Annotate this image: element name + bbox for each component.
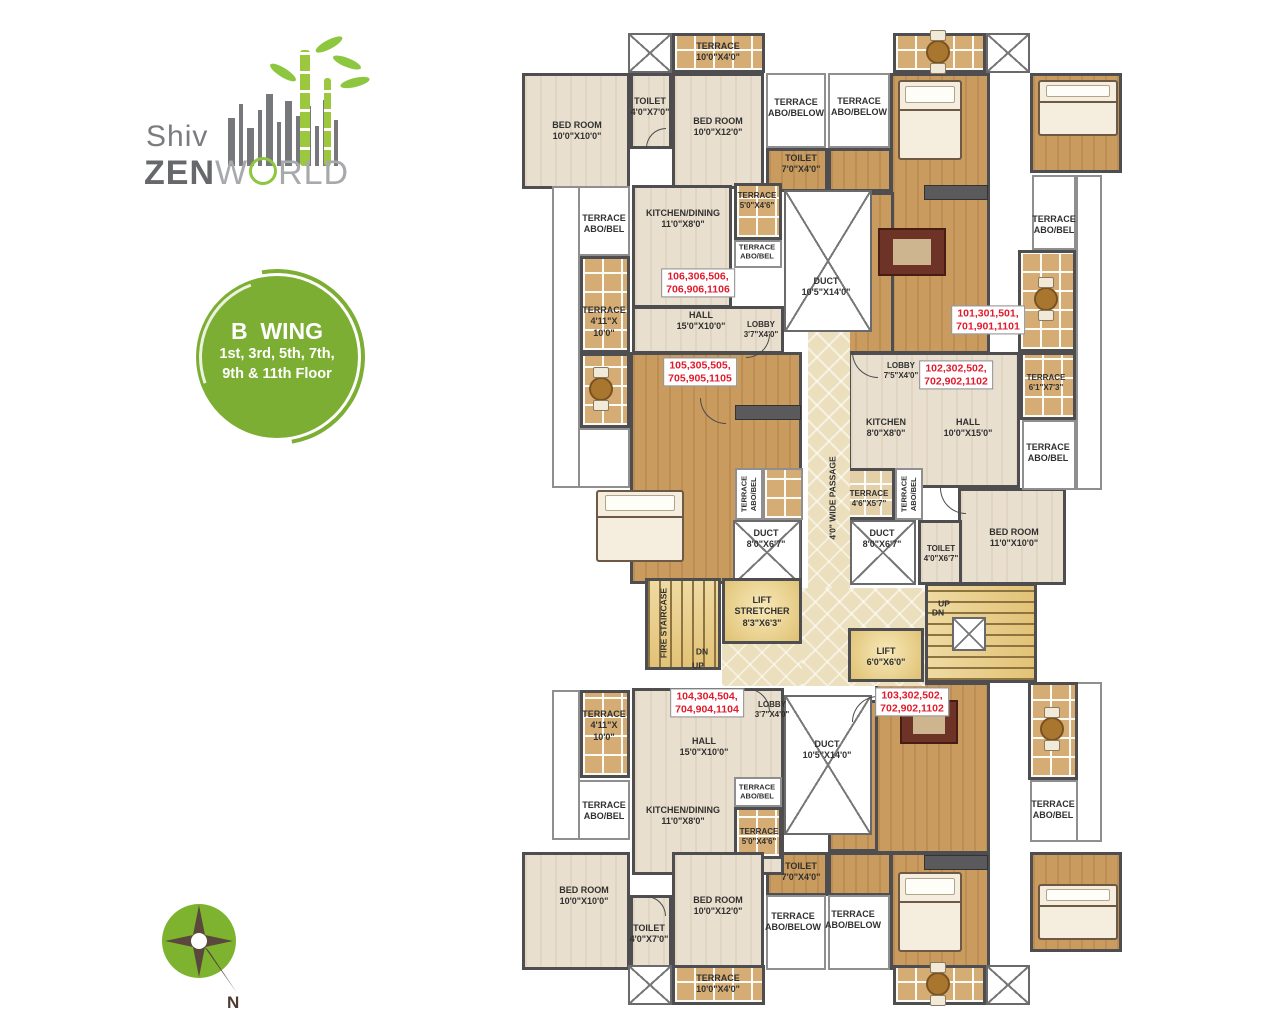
room-terrace-abo-bottom-2 [828,895,890,970]
room-label-line: ABO/BEL [1031,810,1075,821]
room-label-line: TERRACE [900,476,909,512]
room-label-line: 8'0"X6'7" [747,539,786,550]
room-label-line: TERRACE [825,909,881,920]
room-label: LIFT6'0"X6'0" [867,646,906,669]
unit-numbers-label: 106,306,506,706,906,1106 [661,268,735,297]
room-bedroom-bottom-left [522,852,630,970]
room-label: DN [696,647,708,658]
room-label-line: 3'7"X4'0" [755,710,790,720]
room-label-line: ABO/BELOW [768,108,824,119]
room-label: TOILET7'0"X4'0" [782,861,821,884]
room-label-line: KITCHEN/DINING [646,208,720,219]
room-label-line: 10'0" [582,328,626,339]
room-label: KITCHEN/DINING11'0"X8'0" [646,805,720,828]
room-label: TERRACE4'11"X10'0" [582,305,626,339]
room-label-line: TERRACE [850,489,889,499]
room-label-line: 15'0"X10'0" [680,747,729,758]
unit-numbers-label: 102,302,502,702,902,1102 [919,360,993,389]
room-label-line: 10'0" [582,732,626,743]
room-label-line: 4'0"X7'0" [630,934,669,945]
room-label-line: TOILET [782,861,821,872]
room-label-line: HALL [944,417,993,428]
room-label-line: 10'0"X15'0" [944,428,993,439]
room-label-line: 8'0"X8'0" [866,428,906,439]
room-label-line: 4'0" WIDE PASSAGE [828,456,839,539]
room-shaft-bottom-left [628,965,672,1005]
unit-numbers-label: 103,302,502,702,902,1102 [875,687,949,716]
room-label: TERRACE10'0"X4'0" [696,973,740,996]
floor-plan-page: Shiv ZENWRLD B WING 1st, 3rd, 5th, 7th, … [0,0,1280,1024]
room-label: 4'0" WIDE PASSAGE [828,456,839,539]
door-arc-icon [940,488,966,514]
room-label: HALL15'0"X10'0" [677,310,726,333]
room-label: TOILET4'0"X6'7" [924,544,959,564]
table-icon [1040,717,1064,741]
counter-icon [735,405,801,420]
room-label: TOILET7'0"X4'0" [782,153,821,176]
room-label-line: BED ROOM [989,527,1039,538]
room-label-line: TERRACE [582,800,626,811]
room-label: TERRACEABO/BEL [739,243,775,262]
room-label: LOBBY7'5"X4'0" [884,361,919,381]
unit-numbers-line: 705,905,1105 [668,372,732,385]
room-label: LIFTSTRETCHER8'3"X6'3" [734,595,789,629]
unit-numbers-line: 702,902,1102 [924,375,988,388]
room-label: LOBBY3'7"X4'0" [755,700,790,720]
room-label: BED ROOM10'0"X12'0" [693,116,743,139]
room-duct-top [784,190,872,332]
unit-numbers-label: 101,301,501,701,901,1101 [951,305,1025,334]
room-label: TERRACE5'0"X4'6" [740,827,779,847]
room-label: TERRACEABO/BEL [740,476,759,512]
room-label-line: HALL [680,736,729,747]
room-label-line: 10'0"X12'0" [693,906,743,917]
room-label-line: ABO/BEL [739,252,775,261]
room-label-line: 15'0"X10'0" [677,321,726,332]
room-label-line: 10'0"X12'0" [693,127,743,138]
room-label-line: ABO/BEL [909,476,918,512]
unit-numbers-label: 105,305,505,705,905,1105 [663,357,737,386]
room-label-line: TOILET [782,153,821,164]
table-icon [589,377,613,401]
room-label-line: TERRACE [582,213,626,224]
unit-numbers-line: 106,306,506, [666,270,730,283]
room-label-line: BED ROOM [552,120,602,131]
room-label-line: TERRACE [740,476,749,512]
bed-icon [1038,884,1118,940]
room-label-line: KITCHEN [866,417,906,428]
room-label: TOILET4'0"X7'0" [631,96,670,119]
room-label-line: BED ROOM [559,885,609,896]
room-shaft-top-left [628,33,672,73]
room-label-line: HALL [677,310,726,321]
room-label: DN [932,608,944,619]
room-label-line: TERRACE [740,827,779,837]
room-label-line: ABO/BEL [582,224,626,235]
room-label: LOBBY3'7"X4'0" [744,320,779,340]
room-label-line: TERRACE [739,783,775,792]
room-label-line: 3'7"X4'0" [744,330,779,340]
room-label: FIRE STAIRCASE [659,588,670,658]
room-label: DUCT8'0"X6'7" [747,528,786,551]
room-shaft-bottom-right [986,965,1030,1005]
bed-icon [596,490,684,562]
room-label: BED ROOM10'0"X12'0" [693,895,743,918]
room-tile-105-patch [763,468,803,520]
room-label-line: 10'5"X14'0" [803,750,852,761]
room-label-line: TERRACE [1027,373,1066,383]
room-label-line: ABO/BEL [1032,225,1076,236]
room-label-line: UP [692,661,704,672]
room-label-line: TOILET [631,96,670,107]
room-label-line: 4'11"X [582,316,626,327]
room-label: DUCT10'5"X14'0" [802,276,851,299]
room-label-line: TERRACE [696,41,740,52]
room-label-line: 6'0"X6'0" [867,657,906,668]
room-terrace-abol-left-2 [578,428,630,488]
room-label-line: BED ROOM [693,116,743,127]
room-label-line: TERRACE [765,911,821,922]
room-stair-landing [952,617,986,651]
room-label-line: TERRACE [582,305,626,316]
room-label-line: TERRACE [1032,214,1076,225]
room-label: UP [692,661,704,672]
rug-icon [878,228,946,276]
room-label: TERRACEABO/BEL [582,800,626,823]
room-label-line: 4'0"X6'7" [924,554,959,564]
room-label: TERRACE5'0"X4'6" [738,191,777,211]
room-label-line: TERRACE [768,97,824,108]
room-label-line: 4'11"X [582,720,626,731]
room-label: BED ROOM10'0"X10'0" [559,885,609,908]
bed-icon [1038,80,1118,136]
room-label-line: TERRACE [696,973,740,984]
room-label: TERRACEABO/BEL [582,213,626,236]
room-label: TERRACE4'11"X10'0" [582,709,626,743]
floor-plan: TERRACE10'0"X4'0"BED ROOM10'0"X10'0"TOIL… [0,0,1280,1024]
room-label: TERRACEABO/BELOW [825,909,881,932]
wing-badge-floors-2: 9th & 11th Floor [196,365,358,385]
room-label: TERRACEABO/BEL [1031,799,1075,822]
room-label-line: DUCT [747,528,786,539]
room-label: KITCHEN8'0"X8'0" [866,417,906,440]
room-label-line: ABO/BEL [1026,453,1070,464]
room-label: TERRACE10'0"X4'0" [696,41,740,64]
room-label-line: TERRACE [831,96,887,107]
room-label-line: TERRACE [738,191,777,201]
unit-numbers-line: 102,302,502, [924,362,988,375]
room-label-line: DUCT [803,739,852,750]
room-label-line: 10'0"X4'0" [696,984,740,995]
room-label-line: 10'0"X10'0" [552,131,602,142]
room-label: DUCT10'5"X14'0" [803,739,852,762]
room-label-line: TERRACE [1031,799,1075,810]
room-label-line: 4'0"X7'0" [631,107,670,118]
room-label-line: LOBBY [755,700,790,710]
room-terrace-abol-right-top [1032,175,1076,250]
room-label-line: KITCHEN/DINING [646,805,720,816]
room-label: HALL10'0"X15'0" [944,417,993,440]
room-label-line: 11'0"X10'0" [989,538,1039,549]
room-label-line: 10'0"X10'0" [559,896,609,907]
room-label-line: ABO/BELOW [831,107,887,118]
unit-numbers-line: 702,902,1102 [880,702,944,715]
room-label-line: TOILET [630,923,669,934]
room-label-line: LOBBY [884,361,919,371]
counter-icon [924,855,988,870]
room-label-line: 8'3"X6'3" [734,618,789,629]
room-label: BED ROOM11'0"X10'0" [989,527,1039,550]
room-label-line: 7'0"X4'0" [782,164,821,175]
room-label-line: 6'1"X7'3" [1027,383,1066,393]
unit-numbers-line: 103,302,502, [880,689,944,702]
room-shaft-top-right [986,33,1030,73]
room-label: HALL15'0"X10'0" [680,736,729,759]
room-label: BED ROOM10'0"X10'0" [552,120,602,143]
wing-badge-title: B WING [196,318,358,345]
unit-numbers-line: 704,904,1104 [675,703,739,716]
room-label: TERRACE4'6"X5'7" [850,489,889,509]
room-label-line: 5'0"X4'6" [740,837,779,847]
room-label-line: 5'0"X4'6" [738,201,777,211]
room-edge-right-bottom [1076,682,1102,842]
room-edge-left-bottom [552,690,580,840]
table-icon [1034,287,1058,311]
room-label: TERRACEABO/BELOW [768,97,824,120]
room-label-line: 11'0"X8'0" [646,219,720,230]
room-edge-right-top [1076,175,1102,490]
wing-badge: B WING 1st, 3rd, 5th, 7th, 9th & 11th Fl… [196,276,358,438]
bed-icon [898,80,962,160]
room-label-line: ABO/BELOW [765,922,821,933]
room-label-line: LIFT [867,646,906,657]
table-icon [926,40,950,64]
room-label-line: ABO/BEL [749,476,758,512]
bed-icon [898,872,962,952]
room-label-line: TOILET [924,544,959,554]
room-label: TERRACEABO/BEL [900,476,919,512]
room-label-line: 11'0"X8'0" [646,816,720,827]
unit-numbers-line: 105,305,505, [668,359,732,372]
room-label-line: ABO/BEL [739,792,775,801]
table-icon [926,972,950,996]
room-label-line: FIRE STAIRCASE [659,588,670,658]
unit-numbers-label: 104,304,504,704,904,1104 [670,688,744,717]
room-edge-left-top [552,186,580,488]
room-corridor-top-right [828,148,892,192]
room-label: TERRACEABO/BEL [739,783,775,802]
room-corridor-bottom-right [828,852,892,896]
room-label-line: ABO/BEL [582,811,626,822]
unit-numbers-line: 101,301,501, [956,307,1020,320]
room-label-line: ABO/BELOW [825,920,881,931]
room-label-line: 7'5"X4'0" [884,371,919,381]
room-label-line: DUCT [863,528,902,539]
unit-numbers-line: 706,906,1106 [666,283,730,296]
room-label-line: DUCT [802,276,851,287]
room-label-line: TERRACE [1026,442,1070,453]
room-label-line: 10'5"X14'0" [802,287,851,298]
room-label: TERRACEABO/BEL [1026,442,1070,465]
room-label: TERRACE6'1"X7'3" [1027,373,1066,393]
room-label-line: TERRACE [582,709,626,720]
room-label-line: 4'6"X5'7" [850,499,889,509]
room-label-line: TERRACE [739,243,775,252]
room-label: TERRACEABO/BELOW [831,96,887,119]
room-label-line: 7'0"X4'0" [782,872,821,883]
room-label-line: 8'0"X6'7" [863,539,902,550]
room-label-line: BED ROOM [693,895,743,906]
room-label-line: STRETCHER [734,606,789,617]
unit-numbers-line: 701,901,1101 [956,320,1020,333]
counter-icon [924,185,988,200]
room-label-line: LIFT [734,595,789,606]
room-fire-staircase [645,578,721,670]
wing-badge-floors-1: 1st, 3rd, 5th, 7th, [196,345,358,365]
room-lobby-below-stretcher [722,644,802,686]
room-label: TERRACEABO/BEL [1032,214,1076,237]
room-label-line: 10'0"X4'0" [696,52,740,63]
unit-numbers-line: 104,304,504, [675,690,739,703]
room-label: DUCT8'0"X6'7" [863,528,902,551]
room-label-line: DN [696,647,708,658]
room-label: TERRACEABO/BELOW [765,911,821,934]
room-label: TOILET4'0"X7'0" [630,923,669,946]
room-label: KITCHEN/DINING11'0"X8'0" [646,208,720,231]
room-label-line: LOBBY [744,320,779,330]
room-label-line: DN [932,608,944,619]
